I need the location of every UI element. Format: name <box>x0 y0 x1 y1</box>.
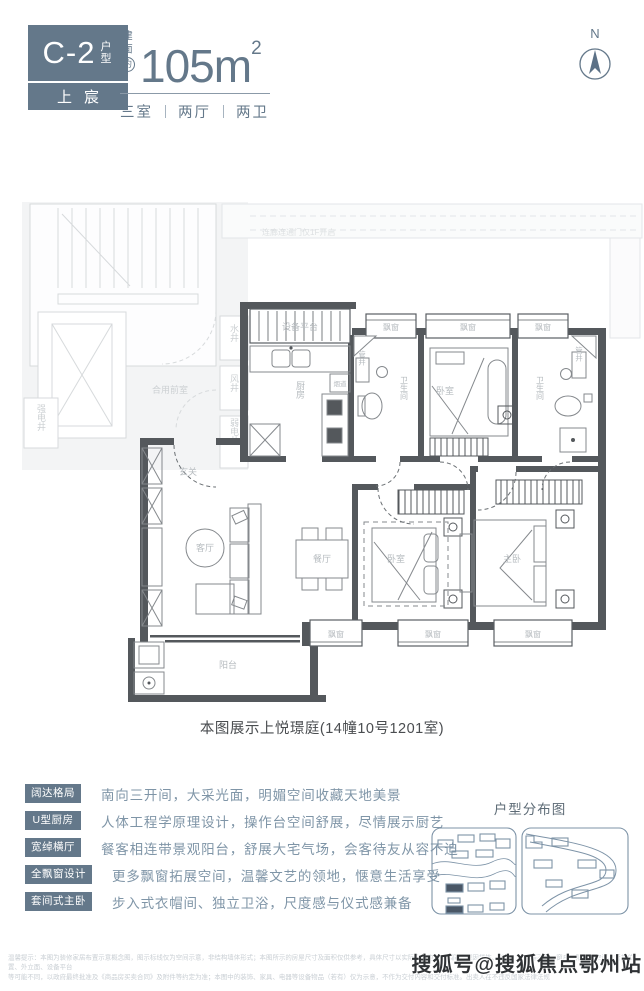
feature-row: 阔达格局 南向三开间，大采光面，明媚空间收藏天地美景 <box>25 784 459 803</box>
bay-window-label: 飘窗 <box>535 322 551 332</box>
floorplan-page: C-2 户型 上宸 建 面 约 105m2 三室 两厅 两卫 N <box>0 0 644 991</box>
bay-window-label: 飘窗 <box>425 629 441 639</box>
bedroom-label: 卧室 <box>387 553 405 564</box>
area-prefix-char: 建 <box>122 30 133 43</box>
bay-windows <box>250 309 572 646</box>
unit-code: C-2 <box>43 35 96 71</box>
pipe-shaft-label: 管井 <box>574 345 583 363</box>
layout-summary: 三室 两厅 两卫 <box>120 101 270 122</box>
corridor-note: 连廊连通门仅1F开启 <box>262 227 335 237</box>
shared-lobby-label: 合用前室 <box>152 384 188 395</box>
area-sup: 2 <box>251 38 262 59</box>
feature-list: 阔达格局 南向三开间，大采光面，明媚空间收藏天地美景 U型厨房 人体工程学原理设… <box>25 784 459 919</box>
north-arrow-icon <box>570 42 620 86</box>
bedroom-label: 卧室 <box>436 385 454 396</box>
feature-row: 套间式主卧 步入式衣帽间、独立卫浴，尺度感与仪式感兼备 <box>25 892 459 911</box>
bathroom-label: 卫生间 <box>400 376 409 401</box>
feature-row: U型厨房 人体工程学原理设计，操作台空间舒展，尽情展示厨艺 <box>25 811 459 830</box>
equipment-platform-label: 设备平台 <box>282 321 318 332</box>
kitchen-label: 厨房 <box>295 381 305 400</box>
separator <box>223 105 224 118</box>
water-shaft-label: 水井 <box>229 323 239 343</box>
feature-desc: 南向三开间，大采光面，明媚空间收藏天地美景 <box>101 784 401 804</box>
area-block: 建 面 约 105m2 三室 两厅 两卫 <box>120 27 270 122</box>
plan-caption: 本图展示上悦璟庭(14幢10号1201室) <box>0 717 644 738</box>
feature-tag: 宽绰横厅 <box>25 838 81 857</box>
layout-rooms: 三室 <box>120 101 153 122</box>
unit-code-badge: C-2 户型 上宸 <box>28 25 128 110</box>
header-divider <box>120 93 270 94</box>
feature-row: 全飘窗设计 更多飘窗拓展空间，温馨文艺的领地，惬意生活享受 <box>25 865 459 884</box>
flue-label: 烟道 <box>334 379 348 388</box>
bathroom-label: 卫生间 <box>536 376 545 401</box>
compass-label: N <box>570 26 620 41</box>
area-prefix-char: 面 <box>122 43 133 56</box>
feature-tag: 套间式主卧 <box>25 892 92 911</box>
feature-row: 宽绰横厅 餐客相连带景观阳台，舒展大宅气场，会客待友从容不迫 <box>25 838 459 857</box>
layout-halls: 两厅 <box>178 101 211 122</box>
feature-tag: U型厨房 <box>25 811 81 830</box>
watermark: 搜狐号@搜狐焦点鄂州站 <box>411 948 642 977</box>
dining-room-label: 餐厅 <box>313 553 331 564</box>
distribution-map: 户型分布图 <box>430 798 630 923</box>
unit-type-label: 户型 <box>100 41 113 65</box>
site-map <box>430 826 630 918</box>
compass: N <box>570 26 620 91</box>
bay-window-label: 飘窗 <box>460 322 476 332</box>
entry-label: 玄关 <box>179 466 197 477</box>
pipe-shaft-label: 管井 <box>357 349 366 367</box>
master-bedroom-label: 主卧 <box>503 553 521 564</box>
distribution-map-title: 户型分布图 <box>430 798 630 818</box>
strong-elec-shaft-label: 强电井 <box>36 404 46 432</box>
feature-desc: 步入式衣帽间、独立卫浴，尺度感与仪式感兼备 <box>112 892 412 912</box>
balcony-label: 阳台 <box>219 659 237 670</box>
area-prefix: 建 面 约 <box>120 30 135 72</box>
living-room-label: 客厅 <box>196 542 214 553</box>
feature-tag: 阔达格局 <box>25 784 81 803</box>
feature-desc: 人体工程学原理设计，操作台空间舒展，尽情展示厨艺 <box>101 811 444 831</box>
area-prefix-char-circled: 约 <box>120 57 135 72</box>
bay-window-label: 飘窗 <box>525 629 541 639</box>
feature-desc: 餐客相连带景观阳台，舒展大宅气场，会客待友从容不迫 <box>101 838 459 858</box>
air-shaft-label: 风井 <box>229 374 239 393</box>
area-value: 105m2 <box>140 27 262 88</box>
bay-window-label: 飘窗 <box>328 629 344 639</box>
brand-name: 上宸 <box>28 83 128 109</box>
separator <box>165 105 166 118</box>
feature-tag: 全飘窗设计 <box>25 865 92 884</box>
feature-desc: 更多飘窗拓展空间，温馨文艺的领地，惬意生活享受 <box>112 865 441 885</box>
floor-plan: 连廊连通门仅1F开启 水井 风井 弱电井 强电井 合用前室 <box>0 190 644 715</box>
bay-window-label: 飘窗 <box>383 322 399 332</box>
layout-baths: 两卫 <box>236 101 269 122</box>
